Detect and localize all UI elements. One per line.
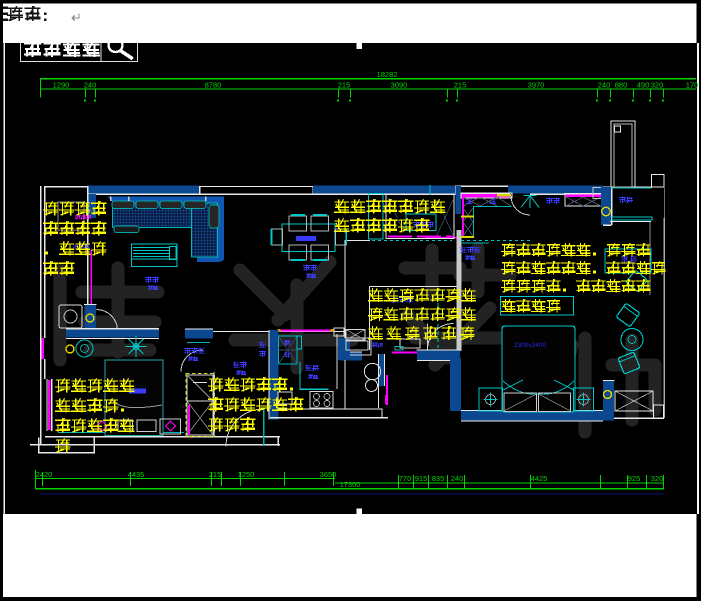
svg-text:4435: 4435 bbox=[128, 470, 145, 479]
svg-text:18282: 18282 bbox=[377, 70, 398, 79]
svg-text:17300: 17300 bbox=[340, 480, 361, 489]
svg-text:490: 490 bbox=[637, 81, 650, 90]
svg-text:8780: 8780 bbox=[205, 81, 222, 90]
svg-text:925: 925 bbox=[628, 474, 641, 483]
svg-text:3970: 3970 bbox=[528, 81, 545, 90]
svg-text:215: 215 bbox=[209, 470, 222, 479]
svg-text:4425: 4425 bbox=[531, 474, 548, 483]
svg-text:240: 240 bbox=[84, 81, 97, 90]
svg-text:915: 915 bbox=[415, 474, 428, 483]
svg-text:215: 215 bbox=[338, 81, 351, 90]
svg-text:1250: 1250 bbox=[238, 470, 255, 479]
svg-text:835: 835 bbox=[432, 474, 445, 483]
svg-text:770: 770 bbox=[399, 474, 412, 483]
svg-text:240: 240 bbox=[598, 81, 611, 90]
svg-text:3090: 3090 bbox=[391, 81, 408, 90]
svg-text:320: 320 bbox=[651, 474, 664, 483]
svg-text:1290: 1290 bbox=[53, 81, 70, 90]
svg-text:2300x2400: 2300x2400 bbox=[514, 342, 547, 349]
svg-text:215: 215 bbox=[454, 81, 467, 90]
svg-text:880: 880 bbox=[615, 81, 628, 90]
svg-text:320: 320 bbox=[651, 81, 664, 90]
svg-text:3650: 3650 bbox=[320, 470, 337, 479]
svg-text:170: 170 bbox=[686, 81, 699, 90]
svg-text:240: 240 bbox=[451, 474, 464, 483]
svg-text:2420: 2420 bbox=[36, 470, 53, 479]
